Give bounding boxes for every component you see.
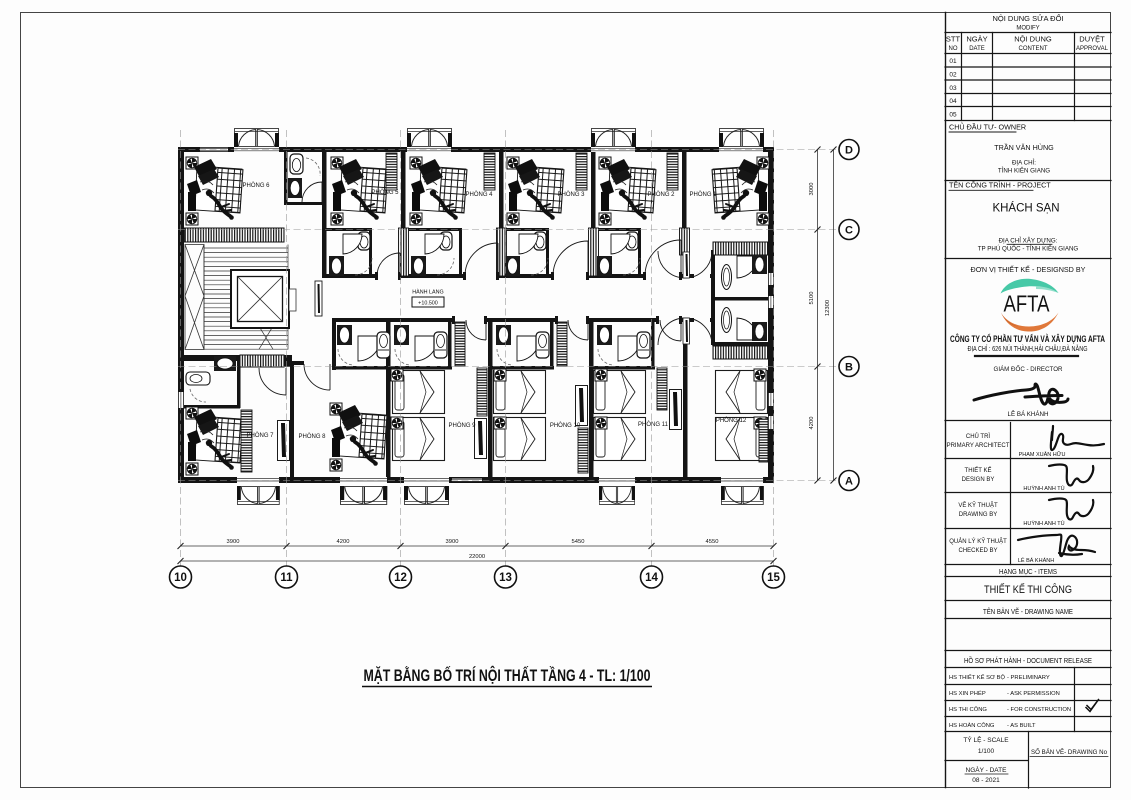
svg-text:- PRELIMINARY: - PRELIMINARY	[1007, 675, 1050, 681]
svg-text:CHỦ TRÌ: CHỦ TRÌ	[966, 433, 991, 440]
svg-text:11: 11	[280, 572, 293, 584]
svg-text:MODIFY: MODIFY	[1016, 26, 1039, 32]
svg-text:5100: 5100	[809, 292, 815, 305]
svg-text:CONTENT: CONTENT	[1019, 46, 1048, 52]
svg-text:PHÒNG 3: PHÒNG 3	[557, 191, 585, 198]
svg-text:DESIGN BY: DESIGN BY	[962, 477, 995, 483]
svg-text:PHÒNG 10: PHÒNG 10	[550, 422, 581, 429]
svg-text:15: 15	[767, 572, 780, 584]
svg-text:01: 01	[949, 58, 957, 65]
svg-text:3000: 3000	[809, 183, 815, 196]
svg-text:- FOR CONSTRUCTION: - FOR CONSTRUCTION	[1007, 707, 1071, 713]
svg-text:LÊ BÁ KHÁNH: LÊ BÁ KHÁNH	[1018, 556, 1054, 564]
svg-text:4200: 4200	[337, 539, 350, 545]
svg-text:12: 12	[394, 572, 407, 584]
svg-text:APPROVAL: APPROVAL	[1076, 46, 1109, 52]
svg-text:PHÒNG 9: PHÒNG 9	[448, 422, 476, 429]
svg-text:22000: 22000	[469, 554, 485, 560]
svg-text:CHECKED BY: CHECKED BY	[958, 548, 997, 554]
svg-text:TỈNH KIÊN GIANG: TỈNH KIÊN GIANG	[998, 167, 1050, 175]
svg-text:ĐỊA CHỈ XÂY DỰNG:: ĐỊA CHỈ XÂY DỰNG:	[999, 237, 1058, 244]
svg-text:PHÒNG 8: PHÒNG 8	[298, 433, 326, 440]
svg-text:ĐƠN VỊ THIẾT KẾ - DESIGNSD BY: ĐƠN VỊ THIẾT KẾ - DESIGNSD BY	[971, 264, 1086, 274]
svg-text:HS XIN PHÉP: HS XIN PHÉP	[949, 690, 986, 697]
svg-text:4550: 4550	[706, 539, 719, 545]
svg-text:NỘI DUNG SỬA ĐỔI: NỘI DUNG SỬA ĐỔI	[993, 14, 1064, 23]
svg-text:14: 14	[645, 572, 658, 584]
svg-text:13: 13	[499, 572, 512, 584]
svg-text:HỒ SƠ PHÁT HÀNH - DOCUMENT REL: HỒ SƠ PHÁT HÀNH - DOCUMENT RELEASE	[964, 655, 1092, 665]
svg-text:+10.500: +10.500	[418, 300, 438, 306]
svg-text:HẠNG MỤC - ITEMS: HẠNG MỤC - ITEMS	[999, 569, 1057, 576]
svg-text:TP PHÚ QUỐC - TỈNH KIÊN GIANG: TP PHÚ QUỐC - TỈNH KIÊN GIANG	[978, 245, 1079, 253]
svg-text:PRIMARY ARCHITECT: PRIMARY ARCHITECT	[947, 443, 1010, 449]
svg-text:PHÒNG 6: PHÒNG 6	[242, 182, 270, 189]
svg-text:A: A	[845, 476, 853, 488]
svg-text:PHÒNG 4: PHÒNG 4	[465, 191, 493, 198]
svg-text:PHÒNG 12: PHÒNG 12	[716, 417, 747, 424]
svg-text:B: B	[845, 362, 853, 374]
svg-text:GIÁM ĐỐC - DIRECTOR: GIÁM ĐỐC - DIRECTOR	[994, 366, 1064, 373]
svg-text:04: 04	[949, 98, 957, 105]
svg-text:1/100: 1/100	[978, 748, 995, 755]
svg-text:03: 03	[949, 85, 957, 92]
svg-text:HS THI CÔNG: HS THI CÔNG	[949, 706, 987, 713]
svg-text:SỐ BẢN VẼ- DRAWING No: SỐ BẢN VẼ- DRAWING No	[1031, 746, 1107, 756]
svg-text:THIẾT KẾ THI CÔNG: THIẾT KẾ THI CÔNG	[984, 583, 1072, 596]
svg-text:TRẦN VĂN HÙNG: TRẦN VĂN HÙNG	[994, 142, 1054, 152]
svg-text:HÀNH LANG: HÀNH LANG	[412, 289, 443, 296]
svg-text:ĐỊA CHỈ : 626 NÚI THÀNH,HẢI CH: ĐỊA CHỈ : 626 NÚI THÀNH,HẢI CHÂU,ĐÀ NẴNG	[968, 344, 1088, 353]
svg-text:PHÒNG 1: PHÒNG 1	[689, 191, 717, 198]
svg-text:PHÒNG 11: PHÒNG 11	[638, 421, 669, 428]
svg-text:12300: 12300	[825, 300, 831, 316]
svg-text:TÊN BẢN VẼ - DRAWING NAME: TÊN BẢN VẼ - DRAWING NAME	[983, 607, 1073, 616]
svg-text:C: C	[845, 225, 853, 237]
svg-text:CÔNG TY CỔ PHẦN TƯ VẤN VÀ XÂY: CÔNG TY CỔ PHẦN TƯ VẤN VÀ XÂY DỰNG AFTA	[950, 333, 1105, 344]
svg-text:DRAWING BY: DRAWING BY	[959, 512, 997, 518]
svg-text:TÊN CÔNG TRÌNH - PROJECT: TÊN CÔNG TRÌNH - PROJECT	[949, 181, 1051, 190]
svg-text:NO: NO	[949, 46, 958, 52]
svg-text:PHÒNG 5: PHÒNG 5	[371, 189, 399, 196]
svg-text:KHÁCH SẠN: KHÁCH SẠN	[992, 202, 1059, 215]
svg-text:PHÒNG 7: PHÒNG 7	[246, 432, 274, 439]
svg-text:D: D	[845, 145, 853, 157]
svg-text:3900: 3900	[227, 539, 240, 545]
svg-text:TỶ LỆ - SCALE: TỶ LỆ - SCALE	[963, 735, 1009, 744]
svg-text:AFTA: AFTA	[1004, 291, 1051, 317]
svg-text:STT: STT	[946, 35, 961, 44]
svg-text:4200: 4200	[809, 417, 815, 430]
svg-text:PHAM XUÂN HỮU: PHAM XUÂN HỮU	[1019, 451, 1066, 458]
svg-text:MẶT BẰNG BỐ TRÍ NỘI THẤT TẦNG: MẶT BẰNG BỐ TRÍ NỘI THẤT TẦNG 4 - TL: 1/…	[364, 665, 651, 685]
svg-text:LÊ BÁ KHÁNH: LÊ BÁ KHÁNH	[1008, 410, 1049, 418]
svg-text:VẼ KỸ THUẬT: VẼ KỸ THUẬT	[958, 502, 998, 509]
svg-text:THIẾT KẾ: THIẾT KẾ	[965, 467, 992, 474]
svg-text:05: 05	[949, 112, 957, 119]
svg-text:DUYỆT: DUYỆT	[1079, 35, 1105, 44]
svg-text:08 - 2021: 08 - 2021	[972, 777, 1000, 784]
svg-text:NGÀY - DATE: NGÀY - DATE	[966, 765, 1008, 774]
svg-text:5450: 5450	[572, 539, 585, 545]
svg-text:DATE: DATE	[969, 46, 985, 52]
svg-text:HS HOÀN CÔNG: HS HOÀN CÔNG	[949, 722, 995, 729]
svg-text:HS THIẾT KẾ SƠ BỘ: HS THIẾT KẾ SƠ BỘ	[949, 674, 1005, 681]
svg-text:CHỦ ĐẦU TƯ- OWNER: CHỦ ĐẦU TƯ- OWNER	[949, 122, 1026, 132]
svg-text:HUỲNH ANH TÚ: HUỲNH ANH TÚ	[1023, 520, 1064, 527]
svg-text:NỘI DUNG: NỘI DUNG	[1014, 35, 1052, 44]
svg-text:QUẢN LÝ KỸ THUẬT: QUẢN LÝ KỸ THUẬT	[949, 538, 1007, 545]
svg-text:ĐỊA CHỈ:: ĐỊA CHỈ:	[1012, 160, 1036, 167]
svg-text:02: 02	[949, 72, 957, 79]
svg-text:10: 10	[174, 572, 187, 584]
svg-text:- AS BUILT: - AS BUILT	[1007, 723, 1036, 729]
svg-text:HUỲNH ANH TÚ: HUỲNH ANH TÚ	[1023, 485, 1064, 492]
svg-text:NGÀY: NGÀY	[966, 35, 987, 44]
svg-text:- ASK PERMISSION: - ASK PERMISSION	[1007, 691, 1060, 697]
svg-text:3900: 3900	[446, 539, 459, 545]
